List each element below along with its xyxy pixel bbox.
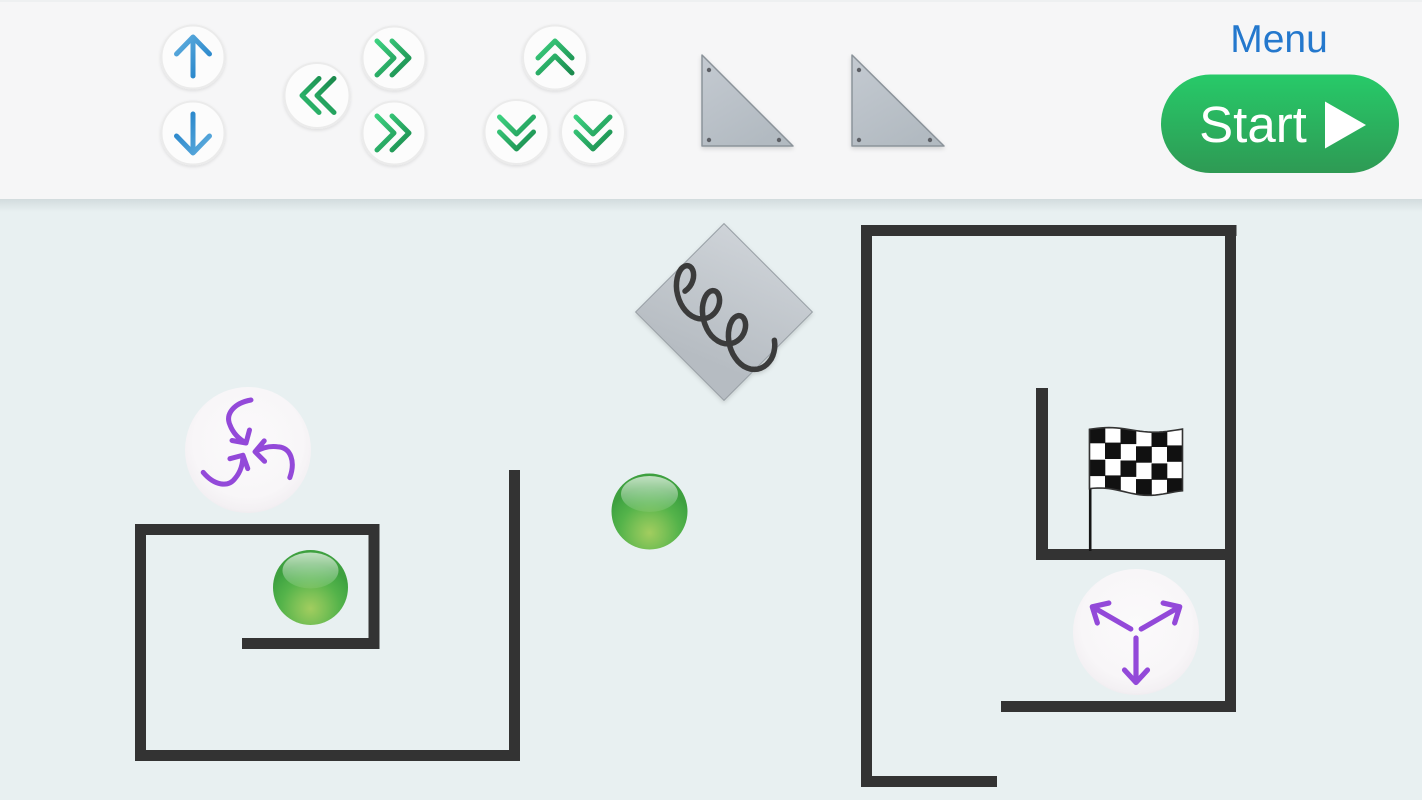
- svg-text:Menu: Menu: [1230, 18, 1328, 61]
- svg-text:Start: Start: [1199, 96, 1307, 153]
